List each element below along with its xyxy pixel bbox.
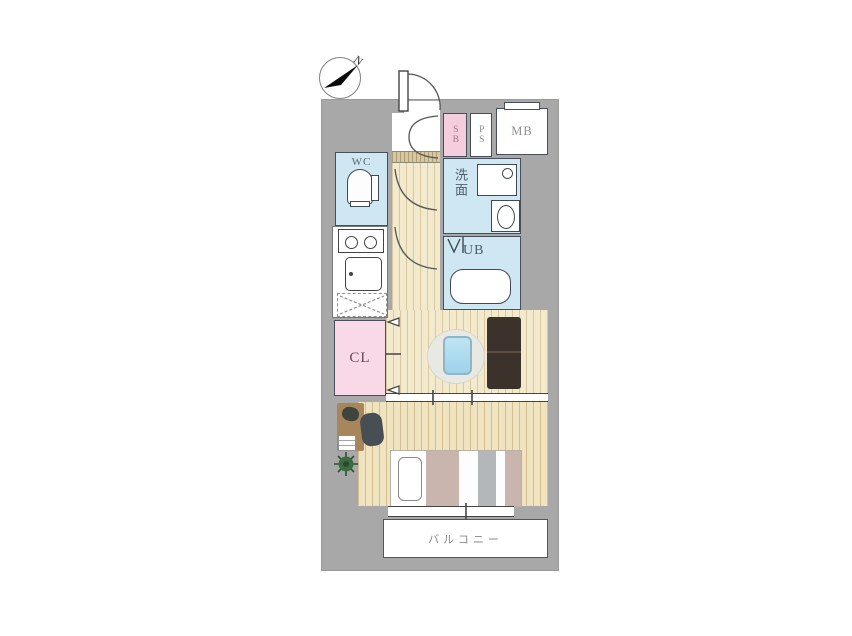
desk-chair-icon bbox=[359, 412, 385, 447]
washroom-label: 洗面 bbox=[451, 168, 470, 198]
meter-box-label: MB bbox=[511, 124, 532, 139]
blanket-segment bbox=[505, 451, 521, 506]
blanket-segment bbox=[478, 451, 497, 506]
room-balcony: バルコニー bbox=[383, 519, 548, 558]
kitchen-sink-icon bbox=[345, 257, 382, 291]
shelf-line bbox=[339, 441, 355, 446]
blanket-segment bbox=[426, 451, 459, 506]
sliding-partition bbox=[386, 393, 548, 402]
room-shoe-box: SB bbox=[443, 113, 467, 157]
shelf-divider bbox=[487, 351, 521, 353]
hallway-floor bbox=[392, 163, 440, 310]
tap-icon bbox=[349, 272, 353, 276]
pipe-shaft-label: PS bbox=[476, 125, 486, 145]
wc-label: WC bbox=[336, 156, 387, 168]
floor-plan-canvas: N SB PS MB WC 洗面 UB bbox=[0, 0, 852, 636]
balcony-window bbox=[388, 506, 514, 517]
burner-icon bbox=[345, 236, 358, 249]
bathtub-icon bbox=[450, 269, 511, 304]
unit-bath-label: UB bbox=[463, 243, 484, 259]
pillow-icon bbox=[398, 457, 422, 501]
washer-knob-icon bbox=[502, 168, 513, 179]
paper-shelf-icon bbox=[338, 435, 356, 451]
room-pipe-shaft: PS bbox=[470, 113, 492, 157]
room-closet: CL bbox=[334, 320, 386, 396]
balcony-label: バルコニー bbox=[428, 531, 503, 547]
meter-box-door-marker bbox=[504, 102, 540, 110]
stove-icon bbox=[338, 229, 384, 253]
bed-icon bbox=[390, 450, 522, 507]
basin-oval-icon bbox=[497, 205, 515, 229]
toilet-tank-icon bbox=[371, 175, 379, 201]
entry-step-floor bbox=[392, 151, 440, 163]
room-meter-box: MB bbox=[496, 108, 548, 155]
shelf-sofa-icon bbox=[487, 317, 521, 389]
floor-cushion-icon bbox=[443, 336, 472, 375]
sink-basin-icon bbox=[491, 200, 520, 232]
closet-label: CL bbox=[349, 350, 370, 367]
blanket-segment bbox=[459, 451, 478, 506]
bed-head bbox=[391, 451, 426, 506]
burner-icon bbox=[364, 236, 377, 249]
refrigerator-space bbox=[337, 293, 387, 317]
toilet-base-icon bbox=[350, 201, 370, 207]
entrance-hall-floor bbox=[392, 113, 440, 151]
washing-machine-icon bbox=[477, 164, 517, 196]
toilet-icon bbox=[347, 169, 373, 205]
shoe-box-label: SB bbox=[450, 125, 460, 145]
blanket-segment bbox=[496, 451, 505, 506]
